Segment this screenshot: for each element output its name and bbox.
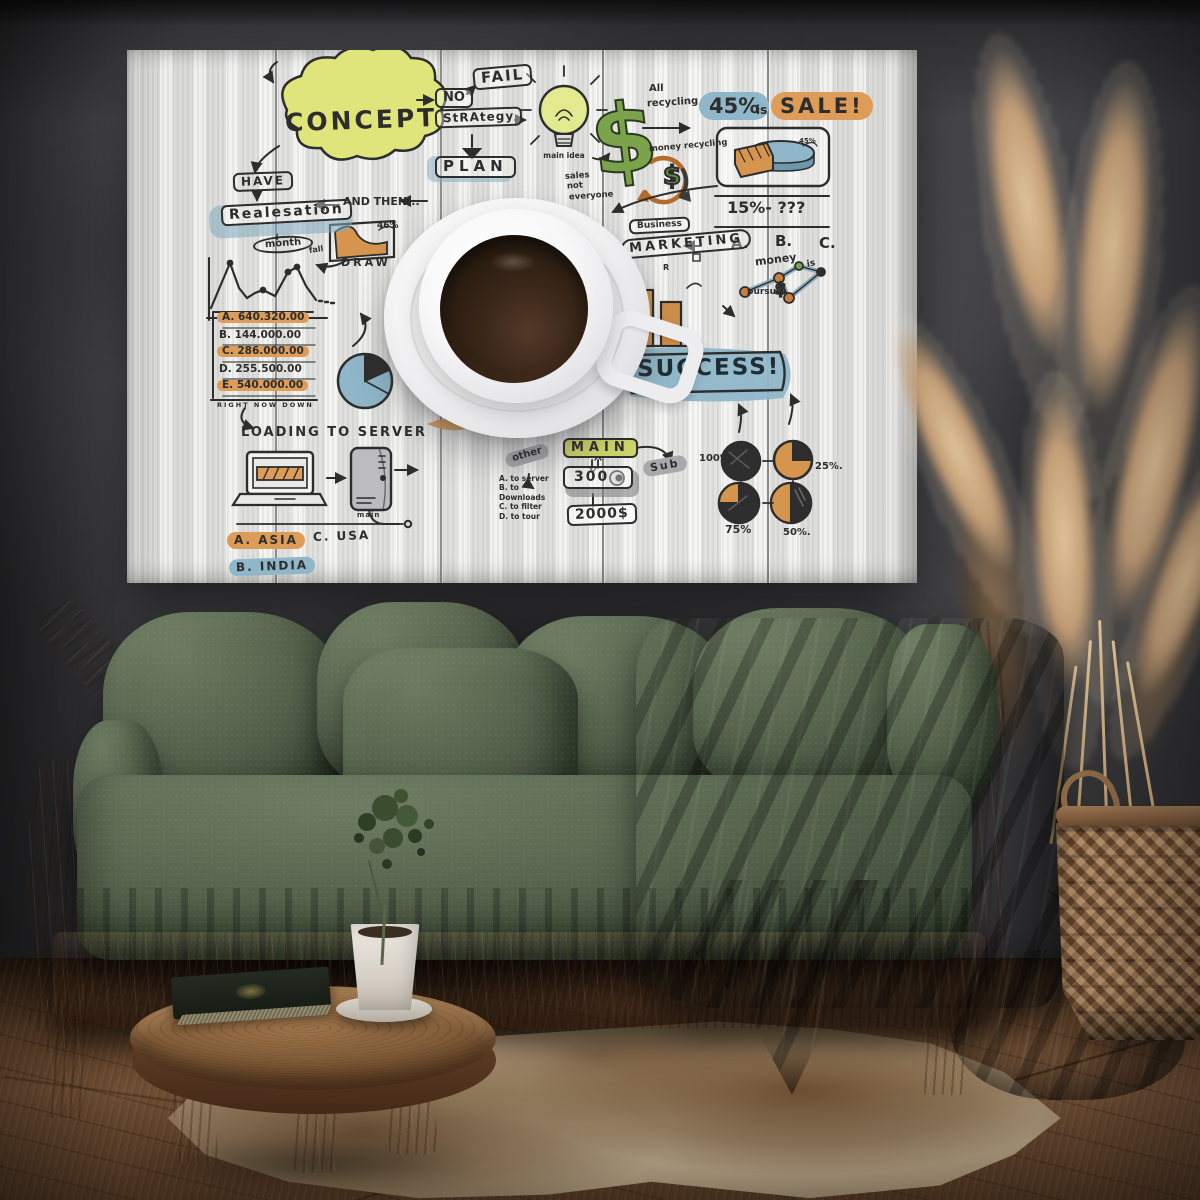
pie-label-50: 50%.: [783, 528, 811, 539]
amount-row: E. 540.000.00: [217, 380, 308, 391]
wicker-basket: [1056, 812, 1200, 1040]
sale-label: SALE!: [771, 92, 873, 120]
to-list-item: C. to filter: [499, 502, 557, 511]
server-main-label: main: [357, 512, 380, 519]
to-list-item: B. to Downloads: [499, 483, 557, 502]
is-label: is: [756, 104, 767, 117]
main-idea-label: main idea: [541, 152, 587, 160]
plant-foliage: [372, 795, 398, 821]
cake-pct-label: 45%: [799, 138, 816, 145]
n300-label: 300: [563, 466, 633, 489]
book-emblem: [235, 983, 266, 1000]
abc-b-label: B.: [775, 234, 792, 250]
region-asia-label: A. ASIA: [227, 532, 305, 549]
basket-rim: [1056, 806, 1200, 826]
pie-label-75: 75%: [725, 524, 751, 536]
region-usa-label: C. USA: [313, 529, 371, 544]
and-then-label: AND THEN...: [343, 196, 420, 208]
main-box-label: MAIN: [563, 438, 638, 458]
sales-label-2: not: [567, 181, 584, 191]
no-label: NO: [435, 88, 473, 108]
to-list-item: A. to server: [499, 474, 557, 483]
ceiling-shadow: [0, 0, 1200, 26]
n2000-label: 2000$: [567, 503, 637, 526]
draw-label: DRAW: [341, 257, 391, 269]
coffee-table: [130, 960, 510, 1200]
pursuit-label: pursuit: [747, 288, 783, 297]
is2-label: is: [806, 259, 816, 270]
abc-c-label: C.: [819, 236, 836, 252]
to-list-item: D. to tour: [499, 512, 557, 521]
plan-label: PLAN: [435, 156, 516, 178]
strategy-label: StRAtegy: [435, 106, 523, 128]
book: [171, 967, 332, 1020]
have-label: HAVE: [233, 171, 294, 192]
right-now-label: RIGHT NOW DOWN: [217, 402, 314, 409]
pie-label-25: 25%.: [815, 462, 843, 473]
recycle-dollar-doodle: $: [663, 161, 681, 191]
draw-pct-label: 46%: [377, 222, 399, 231]
amount-row: B. 144.000.00: [219, 330, 301, 341]
living-room-photo: $ $ $ CONCEPT HAVE Realesation month fal…: [0, 0, 1200, 1200]
pie-label-100: 100%.: [699, 454, 734, 465]
bar-r-label: R: [663, 264, 669, 272]
amount-row: C. 286.000.00: [217, 346, 309, 357]
pct15-label: 15%- ???: [727, 200, 805, 217]
loading-label: LOADING TO SERVER: [241, 426, 427, 440]
amount-row: D. 255.500.00: [219, 364, 302, 375]
sofa-leg-left: [41, 1000, 91, 1118]
coffee-glint: [490, 252, 536, 272]
concept-label: CONCEPT: [285, 106, 418, 137]
to-list: A. to server B. to Downloads C. to filte…: [499, 474, 557, 521]
region-india-label: B. INDIA: [229, 557, 316, 577]
all-label: All: [649, 84, 664, 95]
amount-row: A. 640.320.00: [217, 312, 309, 323]
